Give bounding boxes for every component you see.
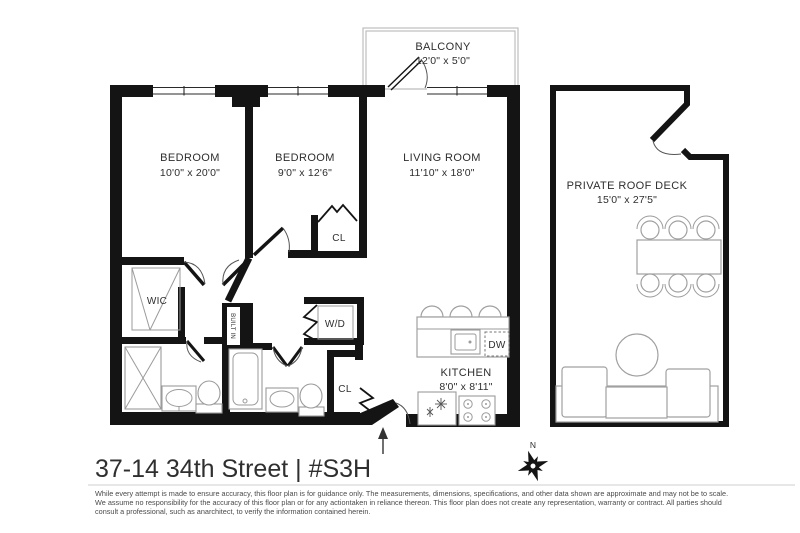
disclaimer-line-3: consult a professional, such as anarchit… [95,507,370,516]
bar-stool [421,306,443,317]
roof-deck-dims: 15'0" x 27'5" [597,194,657,206]
bedroom1-dims: 10'0" x 20'0" [160,167,220,179]
roof-deck [553,88,726,424]
bathroom-1-fixtures [125,347,222,413]
kitchen-appliances [418,392,495,425]
disclaimer-line-2: We assume no responsibility for the accu… [95,498,722,507]
windows [153,85,487,97]
balcony-dims: 12'0" x 5'0" [416,55,470,67]
bathroom-2-fixtures [229,349,324,416]
cl-top-label: CL [332,233,346,244]
deck-dining-set [637,216,721,297]
refrigerator [418,392,456,425]
floorplan-drawing: N BALCONY 12'0" x 5'0" BEDROOM 10'0" x 2… [0,0,800,533]
kitchen-label: KITCHEN [440,367,491,379]
bedroom1-label: BEDROOM [160,152,220,164]
bedroom2-label: BEDROOM [275,152,335,164]
entry-arrow [378,427,388,454]
bar-stool [450,306,472,317]
page-title: 37-14 34th Street | #S3H [95,455,371,483]
kitchen-dims: 8'0" x 8'11" [439,381,492,393]
compass-north-label: N [530,440,536,450]
built-in-label: BUILT IN [229,313,235,339]
built-in-closet [222,303,253,349]
doors [184,57,427,424]
title-block: 37-14 34th Street | #S3H While every att… [88,455,795,516]
bedroom2-dims: 9'0" x 12'6" [278,167,332,179]
deck-lounge-set [556,334,718,422]
balcony-label: BALCONY [415,41,471,53]
cl-bottom-label: CL [338,384,352,395]
roof-deck-label: PRIVATE ROOF DECK [567,180,688,192]
living-room-label: LIVING ROOM [403,152,481,164]
living-room-dims: 11'10" x 18'0" [409,167,475,179]
dw-label: DW [488,340,506,351]
compass-rose: N [513,440,553,486]
wd-label: W/D [325,319,345,330]
wic-label: WIC [147,296,167,307]
floorplan-page: N BALCONY 12'0" x 5'0" BEDROOM 10'0" x 2… [0,0,800,533]
bar-stool [479,306,501,317]
stove [459,396,495,425]
disclaimer-line-1: While every attempt is made to ensure ac… [95,489,728,498]
